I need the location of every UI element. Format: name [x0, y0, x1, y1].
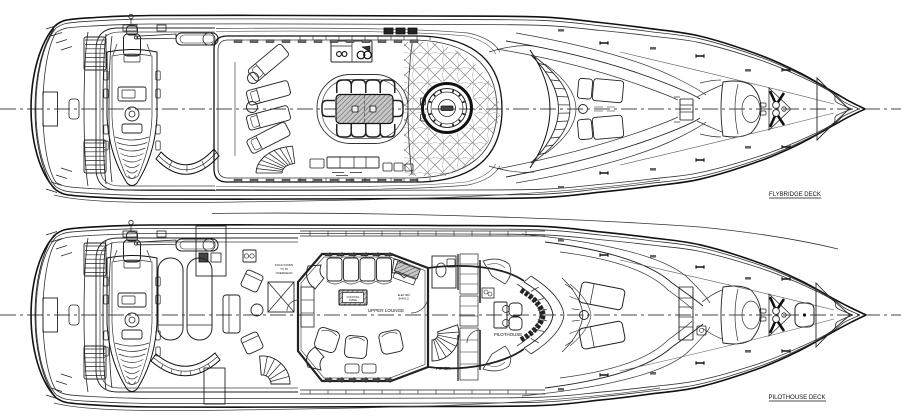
svg-text:FLYBRIDGE DECK: FLYBRIDGE DECK	[769, 192, 821, 198]
svg-text:UPPER LOUNGE: UPPER LOUNGE	[368, 308, 405, 313]
svg-text:TABLE: TABLE	[349, 298, 357, 302]
svg-text:BAR B.Q.: BAR B.Q.	[399, 298, 410, 301]
svg-text:PILOTHOUSE DECK: PILOTHOUSE DECK	[768, 395, 825, 401]
svg-text:PILOTHOUSE: PILOTHOUSE	[494, 332, 522, 337]
svg-text:OVERHEAD: OVERHEAD	[276, 271, 294, 275]
